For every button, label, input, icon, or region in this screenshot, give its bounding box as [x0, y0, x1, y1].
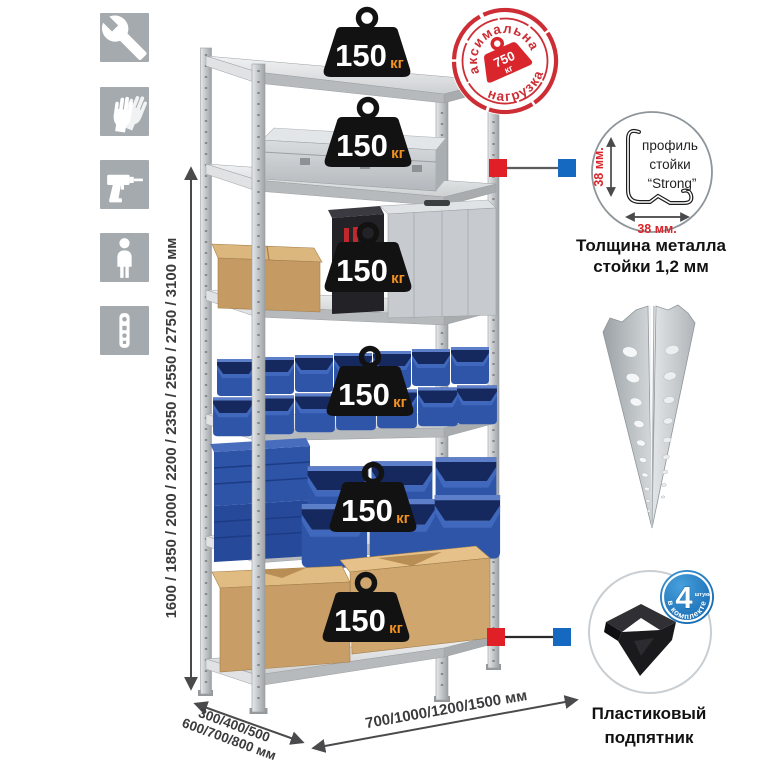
svg-text:150: 150: [336, 253, 388, 288]
foot-detail: 4 штуки в комплекте Пластиковый подпятни…: [589, 570, 714, 747]
foot-caption-2: подпятник: [605, 728, 694, 747]
scene: 1600 / 1850 / 2000 / 2200 / 2350 / 2550 …: [0, 0, 765, 765]
profile-caption-2: стойки 1,2 мм: [593, 257, 709, 276]
svg-text:кг: кг: [391, 270, 405, 287]
profile-caption-1: Толщина металла: [576, 236, 726, 255]
profile-dim-horizontal: 38 мм.: [637, 222, 676, 236]
height-dimension: 1600 / 1850 / 2000 / 2200 / 2350 / 2550 …: [163, 169, 191, 688]
depth-dimension: 300/400/500 600/700/800 мм: [180, 701, 302, 763]
callout-bottom: [487, 628, 571, 646]
foot-caption-1: Пластиковый: [592, 704, 707, 723]
callout-red-marker-top: [489, 159, 507, 177]
cardboard-box-small: [212, 244, 322, 312]
svg-text:кг: кг: [396, 510, 410, 527]
load-weight-2: 150кг: [325, 100, 412, 168]
quantity-badge: 4 штуки в комплекте: [660, 570, 714, 624]
svg-text:кг: кг: [393, 394, 407, 411]
shelving-infographic: 1600 / 1850 / 2000 / 2200 / 2350 / 2550 …: [0, 0, 765, 765]
angle-post-image: [603, 305, 695, 528]
svg-text:150: 150: [341, 493, 393, 528]
load-weight-1: 150кг: [324, 10, 411, 78]
profile-label-3: “Strong”: [648, 176, 697, 191]
badge-side-text: штуки: [695, 592, 712, 598]
svg-text:кг: кг: [390, 55, 404, 72]
profile-dim-vertical: 38 мм.: [592, 147, 606, 186]
rack-post-front-left: [250, 64, 268, 714]
svg-text:150: 150: [334, 603, 386, 638]
svg-text:кг: кг: [389, 620, 403, 637]
profile-label-1: профиль: [642, 138, 698, 153]
callout-top: [489, 159, 576, 177]
callout-blue-marker-bottom: [553, 628, 571, 646]
callout-red-marker-bottom: [487, 628, 505, 646]
svg-text:кг: кг: [391, 145, 405, 162]
callout-blue-marker-top: [558, 159, 576, 177]
svg-text:150: 150: [335, 38, 387, 73]
max-load-stamp: максимальная нагрузка 750 кг: [434, 0, 577, 132]
svg-text:150: 150: [336, 128, 388, 163]
height-dimension-label: 1600 / 1850 / 2000 / 2200 / 2350 / 2550 …: [163, 238, 180, 619]
profile-detail: 38 мм. 38 мм. профиль стойки “Strong” То…: [576, 112, 726, 276]
profile-label-2: стойки: [649, 157, 690, 172]
svg-text:150: 150: [338, 377, 390, 412]
